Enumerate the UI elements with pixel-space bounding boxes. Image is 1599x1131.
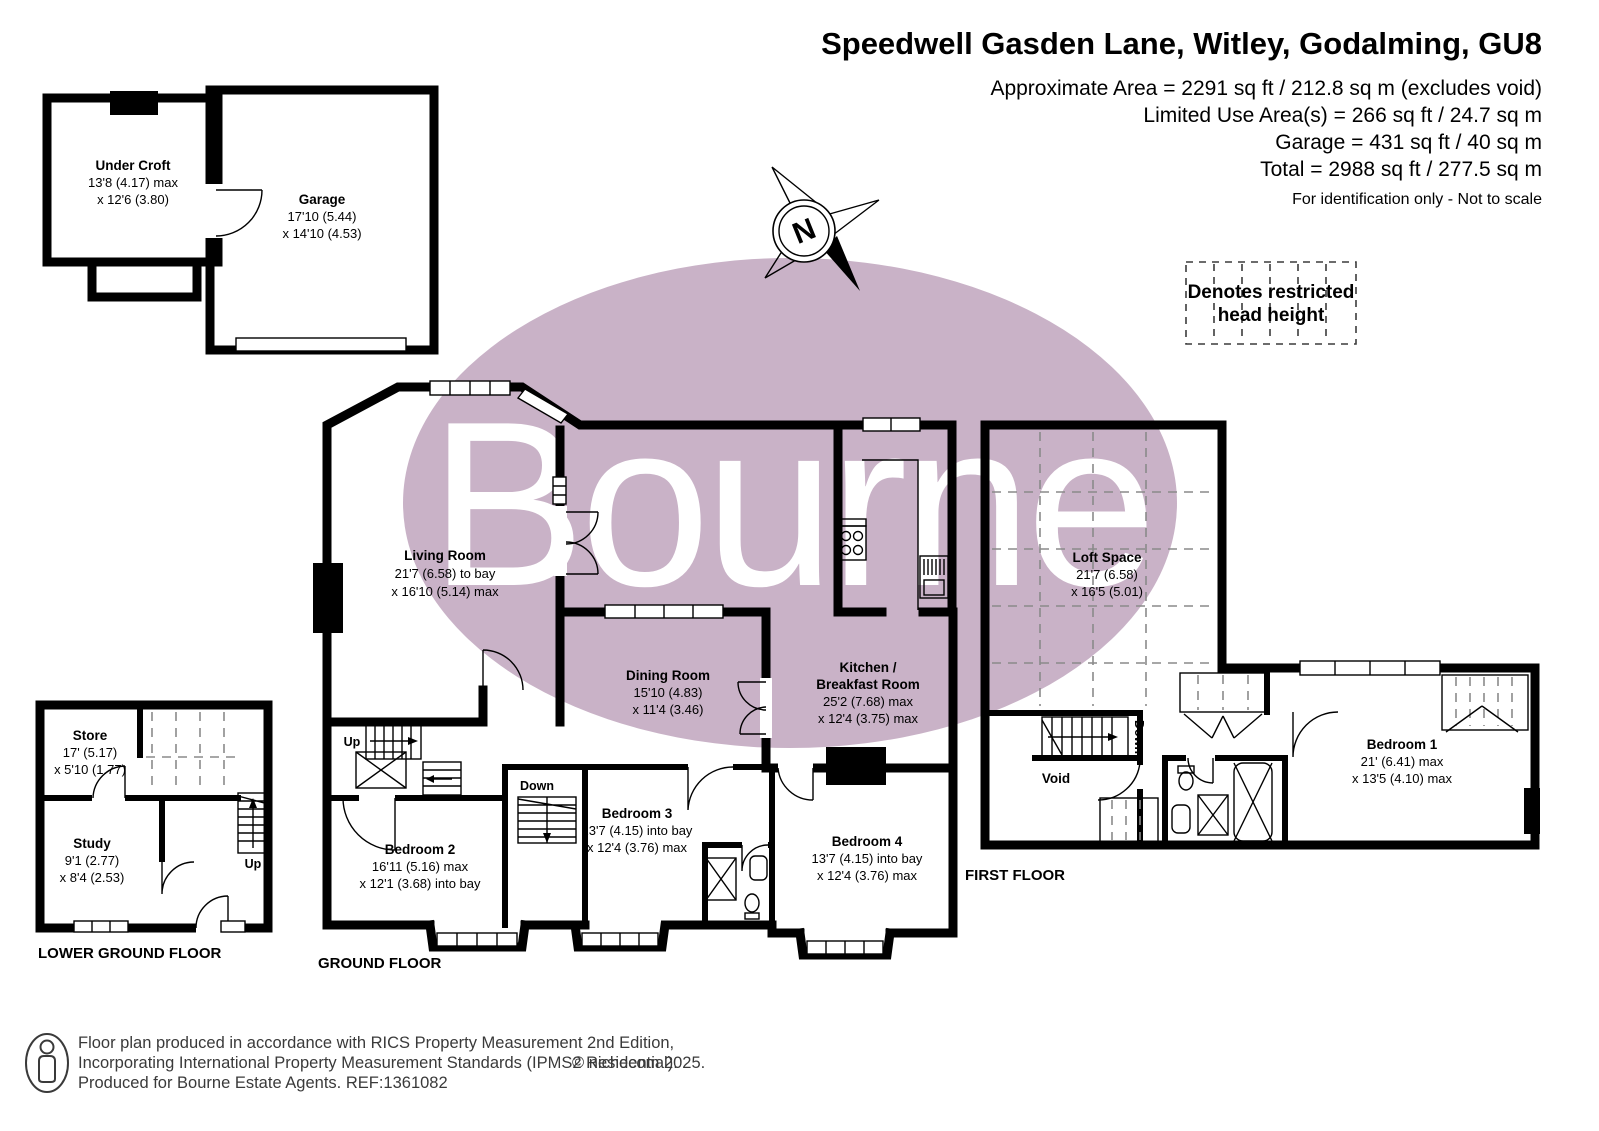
svg-text:x 13'5 (4.10) max: x 13'5 (4.10) max bbox=[1352, 771, 1453, 786]
scale-note: For identification only - Not to scale bbox=[1292, 191, 1542, 208]
area-line: Garage = 431 sq ft / 40 sq m bbox=[1275, 131, 1542, 154]
bedroom1-label: Bedroom 1 bbox=[1367, 737, 1438, 752]
footer-line1: Floor plan produced in accordance with R… bbox=[78, 1034, 674, 1052]
svg-text:21'7 (6.58) to bay: 21'7 (6.58) to bay bbox=[395, 566, 496, 581]
garage-plan: Under Croft 13'8 (4.17) max x 12'6 (3.80… bbox=[47, 90, 434, 351]
svg-text:x 12'4 (3.76) max: x 12'4 (3.76) max bbox=[587, 840, 688, 855]
svg-text:21'7 (6.58): 21'7 (6.58) bbox=[1076, 567, 1138, 582]
svg-text:9'1 (2.77): 9'1 (2.77) bbox=[65, 853, 120, 868]
gf-up-label: Up bbox=[344, 735, 361, 749]
area-line: Limited Use Area(s) = 266 sq ft / 24.7 s… bbox=[1143, 104, 1542, 127]
svg-text:x 14'10 (4.53): x 14'10 (4.53) bbox=[282, 226, 361, 241]
ground-floor-label: GROUND FLOOR bbox=[318, 955, 441, 972]
header: Speedwell Gasden Lane, Witley, Godalming… bbox=[821, 26, 1542, 208]
store-label: Store bbox=[73, 728, 108, 743]
legend-line1: Denotes restricted bbox=[1188, 282, 1355, 303]
svg-text:x 11'4 (3.46): x 11'4 (3.46) bbox=[633, 702, 704, 717]
dining-room-label: Dining Room bbox=[626, 668, 710, 683]
area-line: Approximate Area = 2291 sq ft / 212.8 sq… bbox=[990, 77, 1542, 100]
lower-ground-plan: Up Store 17' (5.17) x 5'10 (1.77) Study … bbox=[38, 705, 268, 962]
svg-text:17' (5.17): 17' (5.17) bbox=[63, 745, 118, 760]
svg-text:x 16'5 (5.01): x 16'5 (5.01) bbox=[1071, 584, 1143, 599]
svg-text:13'7 (4.15) into bay: 13'7 (4.15) into bay bbox=[812, 851, 923, 866]
svg-text:x 8'4 (2.53): x 8'4 (2.53) bbox=[60, 870, 125, 885]
footer-copyright: © nichecom 2025. bbox=[572, 1054, 705, 1072]
legend-restricted-height: Denotes restricted head height bbox=[1186, 262, 1356, 344]
svg-text:x 12'6 (3.80): x 12'6 (3.80) bbox=[97, 192, 169, 207]
svg-text:Breakfast Room: Breakfast Room bbox=[816, 677, 920, 692]
svg-text:x 12'4 (3.76) max: x 12'4 (3.76) max bbox=[817, 868, 918, 883]
person-icon bbox=[26, 1034, 68, 1092]
svg-text:x 5'10 (1.77): x 5'10 (1.77) bbox=[54, 762, 126, 777]
svg-text:17'10 (5.44): 17'10 (5.44) bbox=[288, 209, 357, 224]
svg-text:21' (6.41) max: 21' (6.41) max bbox=[1361, 754, 1444, 769]
svg-text:x 12'1 (3.68) into bay: x 12'1 (3.68) into bay bbox=[360, 876, 481, 891]
loft-space-label: Loft Space bbox=[1072, 550, 1142, 565]
bedroom3-label: Bedroom 3 bbox=[602, 806, 673, 821]
under-croft-label: Under Croft bbox=[96, 158, 171, 173]
living-room-label: Living Room bbox=[404, 548, 486, 563]
watermark-text: Bourne bbox=[429, 372, 1151, 635]
study-label: Study bbox=[73, 836, 111, 851]
garage-label: Garage bbox=[299, 192, 346, 207]
lower-ground-floor-label: LOWER GROUND FLOOR bbox=[38, 945, 221, 962]
legend-line2: head height bbox=[1218, 305, 1325, 326]
lg-up-label: Up bbox=[245, 857, 262, 871]
void-label: Void bbox=[1042, 771, 1070, 786]
svg-text:13'7 (4.15) into bay: 13'7 (4.15) into bay bbox=[582, 823, 693, 838]
ff-down-label: Down bbox=[1132, 720, 1146, 754]
gf-down-label: Down bbox=[520, 779, 554, 793]
first-floor-label: FIRST FLOOR bbox=[965, 867, 1065, 884]
area-line: Total = 2988 sq ft / 277.5 sq m bbox=[1260, 158, 1542, 181]
kitchen-label: Kitchen / bbox=[839, 660, 896, 675]
svg-text:x 12'4 (3.75) max: x 12'4 (3.75) max bbox=[818, 711, 919, 726]
svg-text:15'10 (4.83): 15'10 (4.83) bbox=[634, 685, 703, 700]
svg-text:25'2 (7.68) max: 25'2 (7.68) max bbox=[823, 694, 913, 709]
floorplan-page: Bourne Speedwell Gasden Lane, Witley, Go… bbox=[0, 0, 1599, 1131]
svg-text:x 16'10 (5.14) max: x 16'10 (5.14) max bbox=[391, 584, 499, 599]
page-title: Speedwell Gasden Lane, Witley, Godalming… bbox=[821, 26, 1542, 61]
svg-text:13'8 (4.17) max: 13'8 (4.17) max bbox=[88, 175, 178, 190]
footer-line3: Produced for Bourne Estate Agents. REF:1… bbox=[78, 1074, 448, 1092]
footer: Floor plan produced in accordance with R… bbox=[26, 1034, 705, 1092]
bedroom2-label: Bedroom 2 bbox=[385, 842, 456, 857]
bedroom4-label: Bedroom 4 bbox=[832, 834, 903, 849]
floorplan-canvas: Bourne Speedwell Gasden Lane, Witley, Go… bbox=[0, 0, 1599, 1131]
watermark: Bourne bbox=[403, 258, 1177, 748]
svg-text:16'11 (5.16) max: 16'11 (5.16) max bbox=[372, 859, 469, 874]
